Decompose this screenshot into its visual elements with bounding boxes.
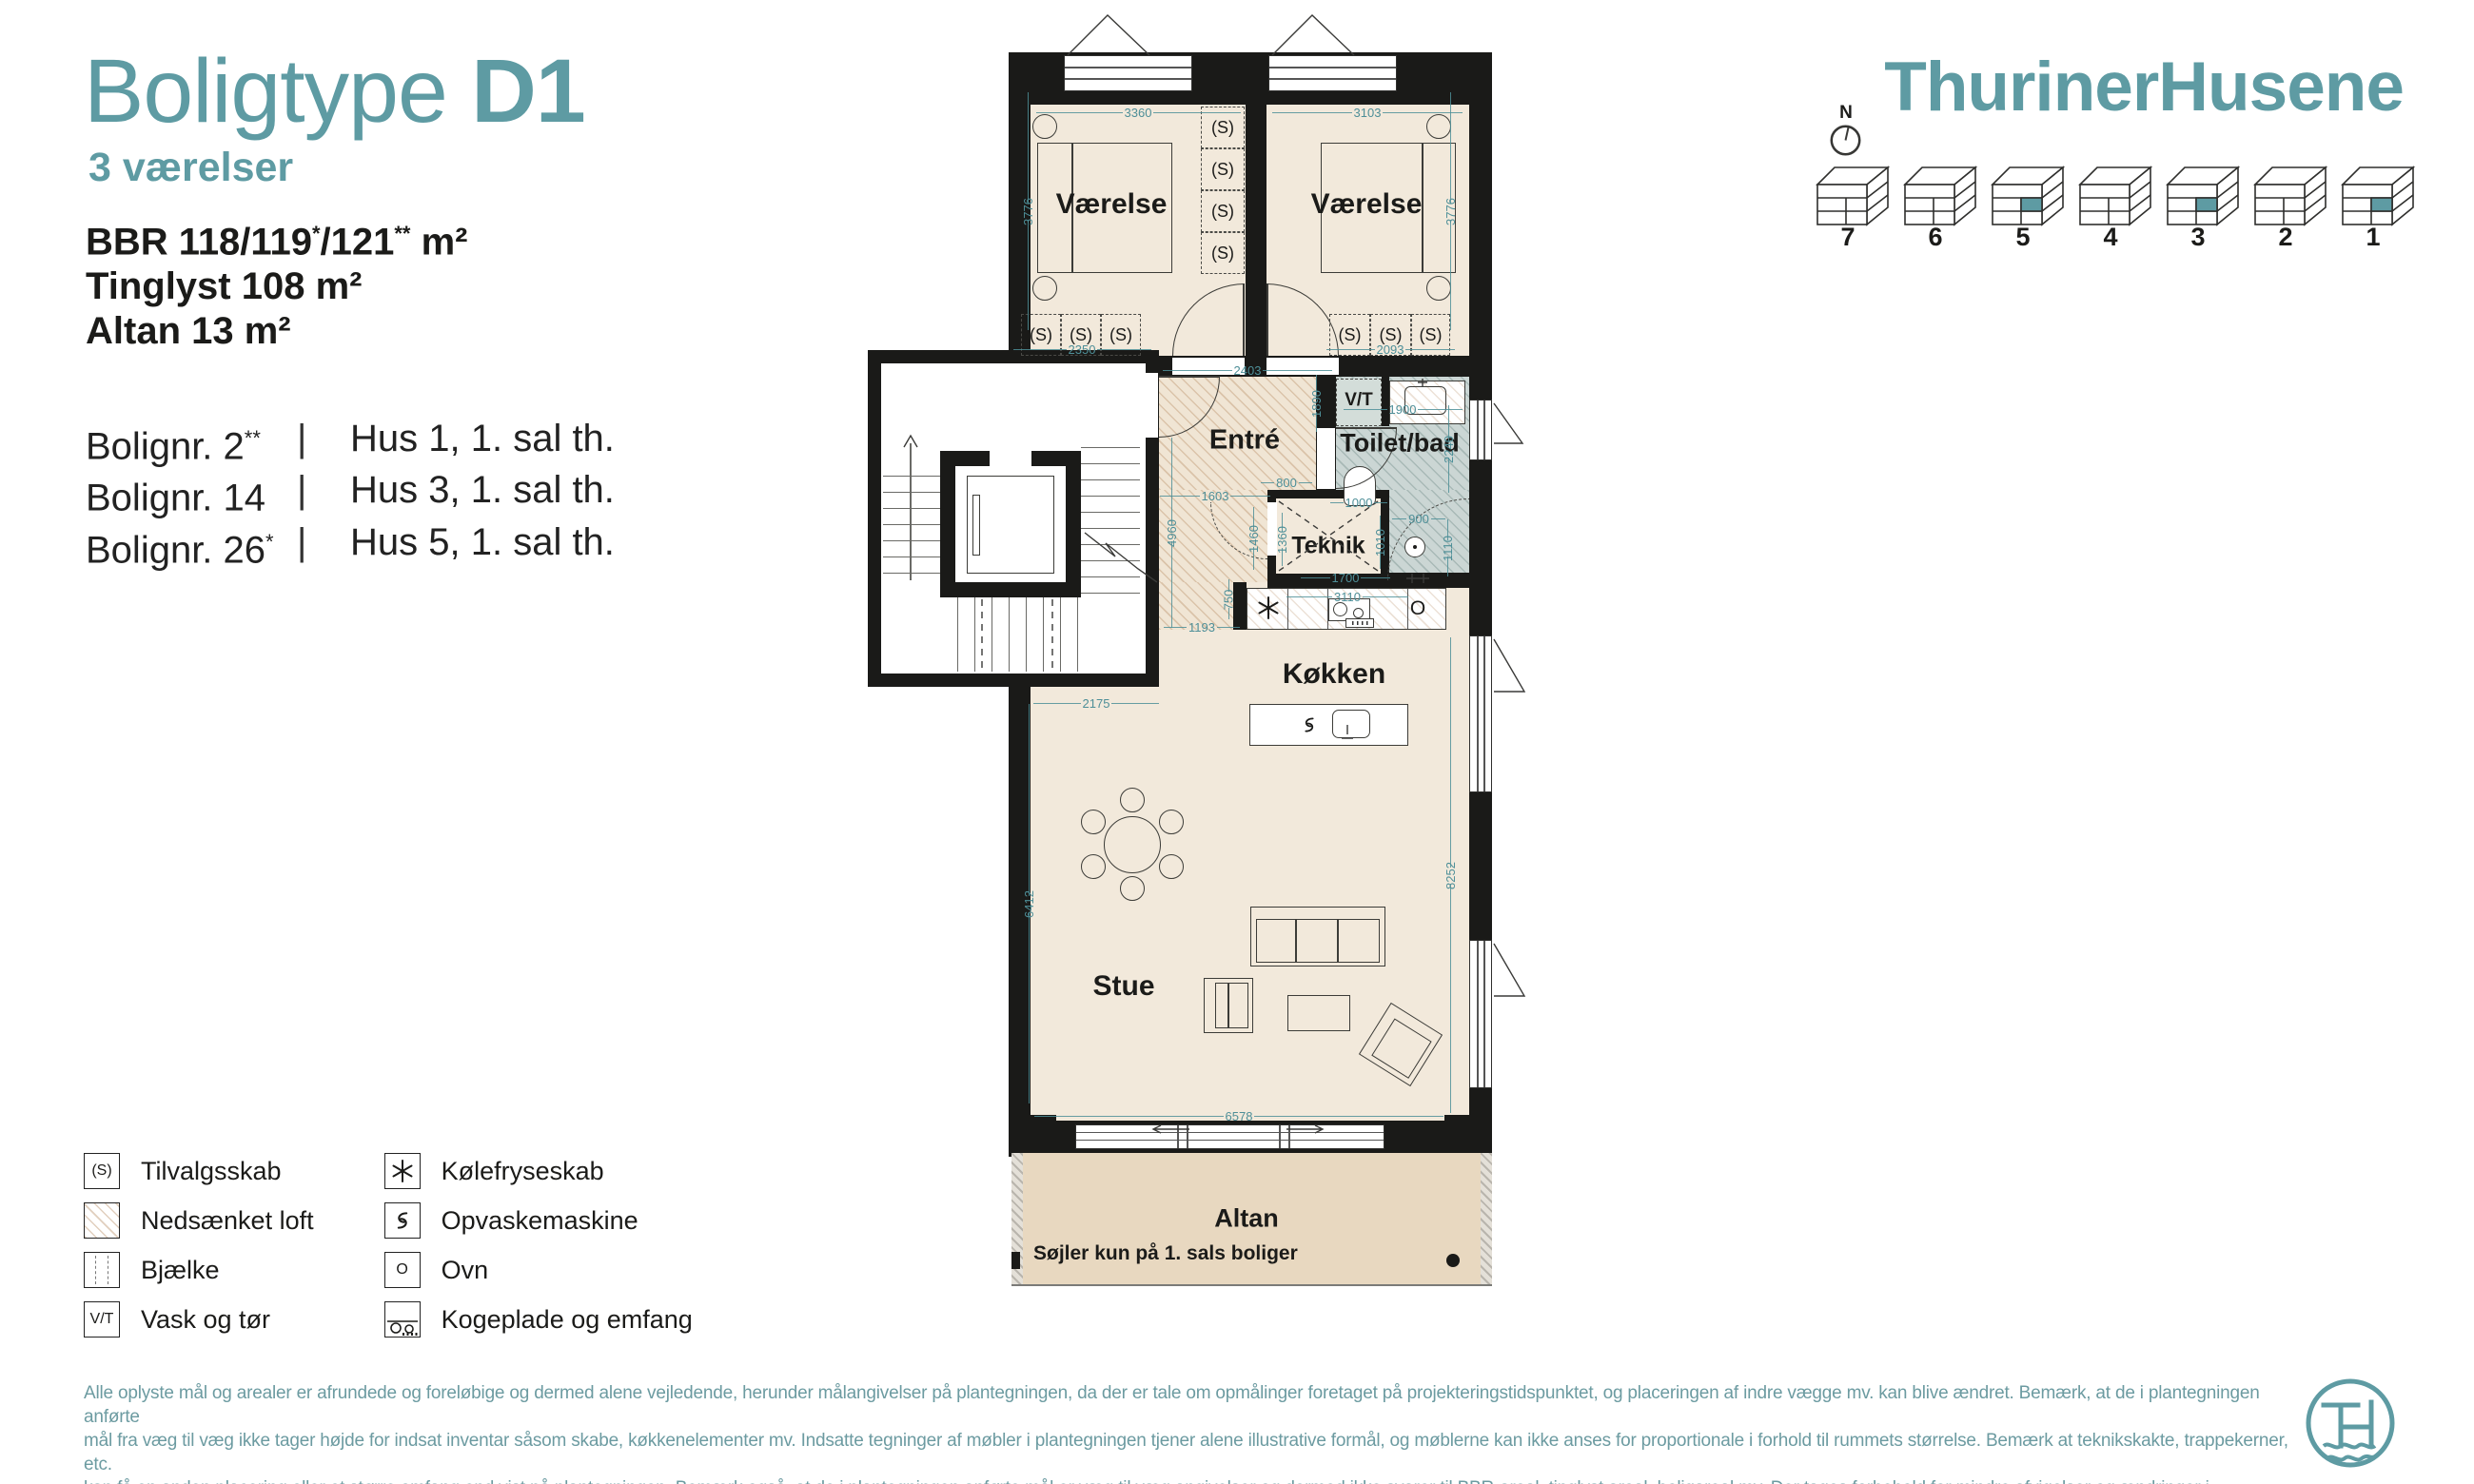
dimension-label: 900 [1392,510,1445,527]
site-building-7: 7 [1814,158,1892,249]
legend: (S)Tilvalgsskab Nedsænket loft Bjælke V/… [84,1153,693,1338]
bath-door-opening [1317,428,1335,489]
balcony-wall [1481,1153,1492,1286]
wall [1246,52,1266,356]
floor-plan-sheet: Boligtype D1 3 værelser BBR 118/119*/121… [0,0,2474,1484]
dimension-label: 1700 [1301,569,1390,586]
site-plan-buildings: 7654321 [1814,158,2417,249]
svg-text:4: 4 [2103,223,2117,249]
dining-chair [1159,854,1184,879]
legend-item: V/TVask og tør [84,1301,314,1338]
lowered-ceiling-icon [84,1202,120,1239]
unit-row: Bolignr. 14|Hus 3, 1. sal th. [86,468,615,519]
legend-item: Nedsænket loft [84,1202,314,1239]
dimension-label: 2093 [1326,341,1455,358]
dimension-label: 1193 [1164,618,1240,635]
dining-chair [1120,876,1145,901]
optional-cabinet-icon: (S) [84,1153,120,1189]
compass-north-label: N [1833,103,1859,124]
oven-icon: O [1410,597,1425,620]
brand-seal-icon [2301,1374,2400,1473]
svg-text:3: 3 [2190,223,2205,249]
site-building-2: 2 [2251,158,2329,249]
site-building-1: 1 [2339,158,2417,249]
balcony-note: Søjler kun på 1. sals boliger [1033,1242,1298,1265]
sofa [1250,907,1385,967]
dining-chair [1081,854,1106,879]
burner-icon [1353,608,1364,618]
unit-row: Bolignr. 26*|Hus 5, 1. sal th. [86,520,615,572]
balcony-column [1011,1252,1020,1269]
legend-item: OOvn [384,1252,693,1288]
dimension-label: 1890 [1307,375,1325,432]
room-label-kitchen: Køkken [1283,658,1385,691]
cooktop-hood-icon [384,1301,421,1338]
kitchen-island [1249,704,1408,746]
legend-item: Kølefryseskab [384,1153,693,1189]
window [1469,635,1492,792]
drain-dot [1413,545,1417,549]
unit-list: Bolignr. 2**|Hus 1, 1. sal th. Bolignr. … [86,417,615,572]
dining-table [1104,816,1161,873]
oven-icon: O [384,1252,421,1288]
balcony-label: Altan [1214,1204,1279,1234]
svg-text:1: 1 [2366,223,2380,249]
area-altan: Altan 13 m² [86,309,468,354]
area-tinglyst: Tinglyst 108 m² [86,264,468,309]
dimension-label: 750 [1220,579,1237,619]
legend-item: Bjælke [84,1252,314,1288]
legend-item: (S)Tilvalgsskab [84,1153,314,1189]
dimension-label: 1010 [1371,516,1388,569]
stair-flight [957,597,1081,672]
elevator-counterweight [972,495,980,556]
stair-flight [1081,447,1140,597]
room-label-living: Stue [1092,970,1154,1003]
compass-icon [1831,126,1860,155]
area-summary: BBR 118/119*/121** m² Tinglyst 108 m² Al… [86,211,468,354]
dining-chair [1120,788,1145,812]
fridge-freezer-icon [1256,596,1281,620]
dimension-label: 2350 [1013,341,1151,358]
brand-logo: ThurinerHusene [1884,48,2404,127]
window [1469,400,1492,460]
optional-cabinet: (S) [1201,190,1245,232]
window [1268,55,1397,91]
svg-text:7: 7 [1840,223,1855,249]
door-leaf [1266,283,1268,356]
balcony-edge [1011,1284,1492,1286]
coffee-table [1287,995,1350,1031]
dining-chair [1081,810,1106,834]
dimension-label: 4960 [1163,438,1180,628]
svg-text:5: 5 [2015,223,2030,249]
door-leaf [1243,283,1245,356]
dimension-label: 6578 [1034,1107,1443,1124]
beam-icon [84,1252,120,1288]
dishwasher-icon [1296,712,1323,738]
dimension-label: 3776 [1442,92,1459,330]
dimension-label: 1110 [1439,519,1456,576]
site-building-4: 4 [2076,158,2154,249]
dimension-label: 1000 [1330,494,1387,511]
site-building-3: 3 [2164,158,2242,249]
dimension-label: 8252 [1442,637,1459,1113]
elevator-door [990,447,1031,468]
svg-text:6: 6 [1928,223,1942,249]
wall-pier [1444,1115,1492,1157]
island-sink [1332,710,1370,738]
dimension-label: 3110 [1286,588,1408,605]
hood-icon [1345,618,1374,628]
window [1064,55,1192,91]
fridge-freezer-icon [384,1153,421,1189]
dimension-label: 1460 [1245,507,1262,570]
dimension-label: 2175 [1033,694,1159,712]
svg-text:2: 2 [2278,223,2292,249]
window [1469,940,1492,1088]
page-title: Boligtype D1 [84,40,585,144]
page-subtitle: 3 værelser [88,145,293,191]
dimension-label: 3360 [1036,104,1241,121]
disclaimer: Alle oplyste mål og arealer er afrundede… [84,1381,2296,1484]
room-label-bedroom: Værelse [1056,188,1168,221]
stair-walkline [910,443,912,580]
washer-dryer-icon: V/T [84,1301,120,1338]
balcony-sliding-door [1075,1124,1384,1149]
optional-cabinet: (S) [1201,148,1245,190]
dishwasher-icon [384,1202,421,1239]
dimension-label: 1360 [1273,513,1290,566]
room-label-entry: Entré [1209,425,1280,457]
dimension-label: 2240 [1440,405,1457,493]
dimension-label: 6412 [1020,704,1037,1103]
site-building-5: 5 [1989,158,2067,249]
dimension-label: 3776 [1019,92,1036,330]
optional-cabinet: (S) [1201,232,1245,274]
stair-flight [883,476,940,582]
dimension-label: 3103 [1272,104,1463,121]
site-building-6: 6 [1901,158,1979,249]
area-bbr: BBR 118/119*/121** m² [86,211,468,264]
room-label-tech: Teknik [1291,533,1365,560]
dining-chair [1159,810,1184,834]
balcony-column [1446,1254,1460,1267]
unit-row: Bolignr. 2**|Hus 1, 1. sal th. [86,417,615,468]
armchair [1204,978,1253,1033]
room-label-bedroom: Værelse [1311,188,1423,221]
entry-door-opening [1144,373,1158,438]
legend-item: Opvaskemaskine [384,1202,693,1239]
legend-item: Kogeplade og emfang [384,1301,693,1338]
